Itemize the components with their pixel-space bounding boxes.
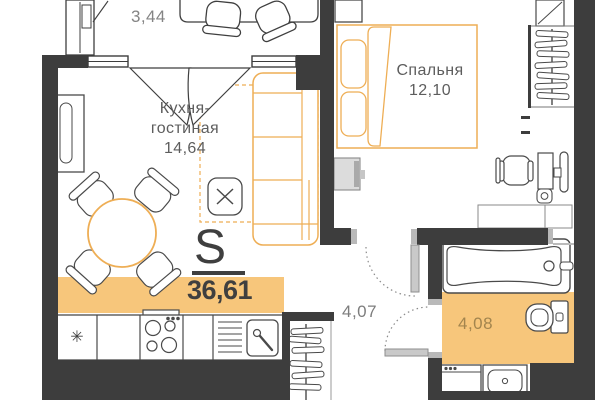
bathroom-door-leaf [385, 349, 428, 356]
bathroom-door-swing [385, 307, 429, 351]
doors [366, 245, 429, 356]
wall-bottom-bath-band [428, 391, 574, 400]
kitchen-living-name-line1: Кухня- [100, 99, 270, 119]
bedroom-furniture [334, 0, 574, 228]
tv-dresser-icon [334, 158, 365, 190]
balcony-cabinet-door [93, 1, 108, 22]
entry-cabinet-icon [536, 0, 564, 26]
nightstand-icon [335, 0, 362, 22]
wall-bottom-left-band [42, 360, 290, 400]
total-area-value: 36,61 [187, 275, 252, 306]
bathtub-icon [443, 239, 573, 293]
wall-bath-door-jamb [428, 299, 442, 305]
balcony-cabinet-inner [82, 5, 91, 28]
wall-bathroom-left-upper [428, 245, 442, 299]
wall-bath-door-jamb [428, 352, 442, 358]
bedroom-closet-outline [478, 205, 572, 228]
wall-entry-strip-divider [528, 25, 531, 108]
washing-machine-icon [441, 365, 481, 393]
bedroom-name: Спальня [360, 61, 500, 81]
balcony-desk-icon [180, 0, 318, 22]
dining-table-icon [88, 199, 156, 267]
toilet-icon [526, 301, 568, 333]
bathroom-area-label: 4,08 [458, 314, 493, 334]
balcony-chair-icon [202, 0, 243, 37]
wall-hinge-tick [521, 131, 530, 134]
wall-door-jamb [411, 229, 417, 244]
wall-bedroom-divider [320, 0, 334, 245]
sink-icon [247, 320, 278, 356]
wall-door-jamb [351, 229, 357, 244]
wall-balcony-left-block [42, 55, 88, 68]
hall-coat-rack-icon [289, 321, 331, 400]
wall-rack-niche-top [282, 312, 334, 321]
wall-bedroom-bottom [334, 228, 351, 245]
wall-entry-jamb [548, 229, 553, 244]
wall-entry-threshold [553, 243, 574, 245]
kitchen-living-name-line2: гостиная [100, 119, 270, 139]
fridge-icon: ✳ [60, 327, 94, 347]
balcony-furniture [66, 0, 318, 55]
trash-bin-icon [537, 189, 552, 203]
balcony-area-label: 3,44 [131, 7, 166, 27]
bedroom-door-swing [366, 247, 415, 296]
wall-hinge-tick [521, 116, 530, 119]
office-chair-icon [496, 156, 533, 185]
floor-plan: 3,44 Кухня- гостиная 14,64 Спальня 12,10… [0, 0, 600, 400]
wall-left [42, 55, 58, 400]
bedroom-desk-icon [538, 152, 568, 192]
bedroom-door-leaf [411, 245, 419, 292]
bedroom-area: 12,10 [360, 81, 500, 101]
bedroom-label: Спальня 12,10 [360, 61, 500, 101]
wall-rack-niche-left [282, 321, 290, 400]
end-table-icon [208, 178, 242, 215]
hallway-area-label: 4,07 [342, 302, 377, 322]
total-area-symbol: S [194, 223, 226, 273]
kitchen-tv-unit-icon [56, 95, 84, 172]
wall-right [574, 0, 595, 400]
windows [88, 56, 296, 67]
wardrobe-icon [531, 26, 574, 107]
wall-bathroom-top [423, 228, 548, 245]
wall-door-hinge-block [417, 228, 423, 245]
kitchen-living-label: Кухня- гостиная 14,64 [100, 99, 270, 159]
kitchen-living-area: 14,64 [100, 139, 270, 159]
